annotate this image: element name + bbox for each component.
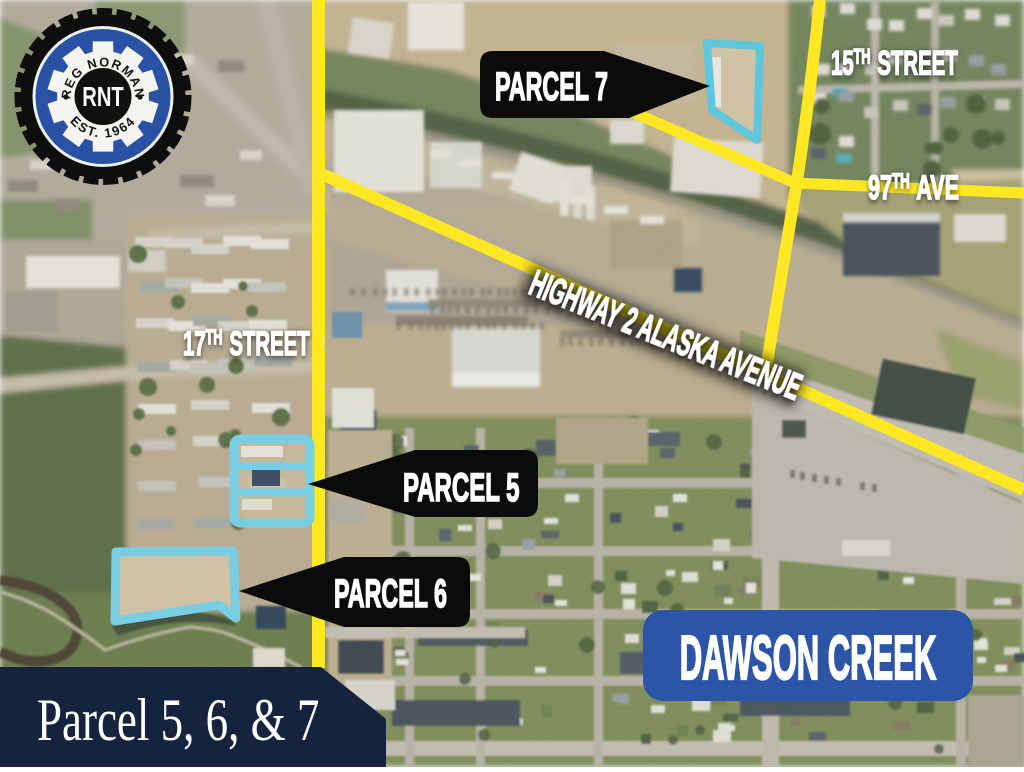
- svg-text:DAWSON CREEK: DAWSON CREEK: [680, 625, 937, 693]
- svg-text:PARCEL 7: PARCEL 7: [495, 63, 608, 108]
- svg-text:Parcel 5, 6, & 7: Parcel 5, 6, & 7: [37, 688, 319, 754]
- svg-text:RNT: RNT: [82, 82, 123, 113]
- svg-text:PARCEL 6: PARCEL 6: [334, 570, 447, 615]
- svg-text:PARCEL 5: PARCEL 5: [403, 465, 519, 510]
- svg-text:15TH STREET: 15TH STREET: [831, 44, 958, 82]
- svg-text:97TH AVE: 97TH AVE: [868, 169, 959, 207]
- svg-text:17TH STREET: 17TH STREET: [183, 325, 310, 363]
